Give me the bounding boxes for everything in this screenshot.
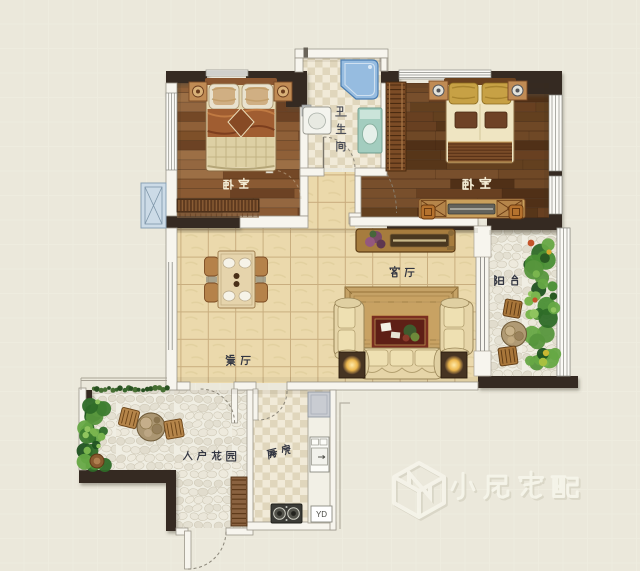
- svg-text:YD: YD: [316, 510, 327, 519]
